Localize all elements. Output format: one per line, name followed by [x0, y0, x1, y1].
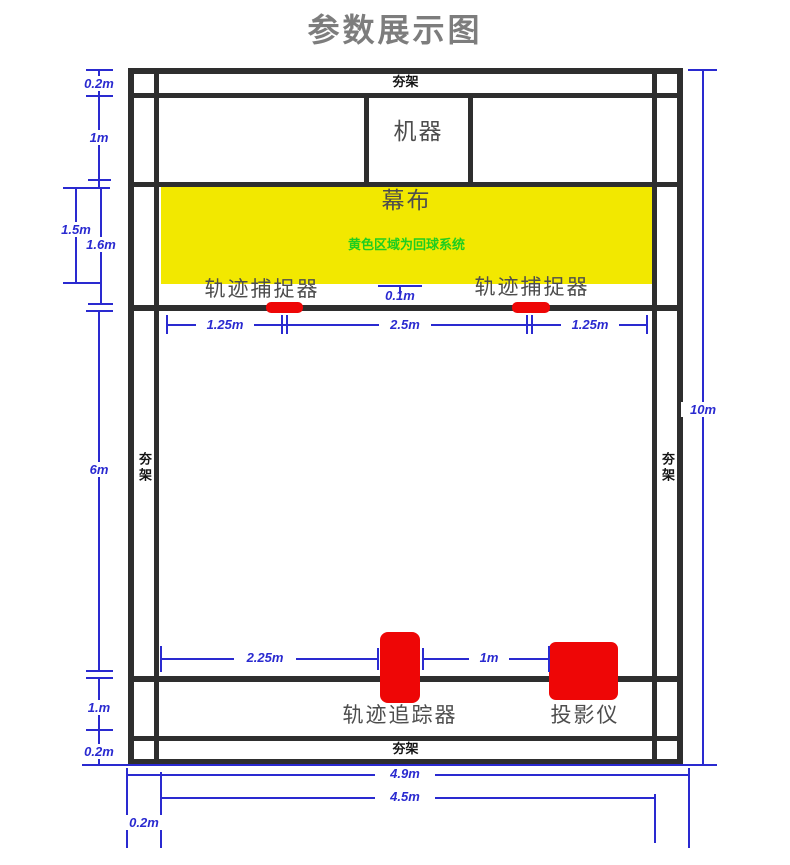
projector-device [549, 642, 618, 700]
dim-tick [548, 646, 550, 672]
dim-net-left: 1.25m [196, 317, 254, 332]
dim-screen-to-net: 1.6m [79, 237, 123, 252]
screen-label: 幕布 [161, 189, 652, 213]
dim-tick [377, 648, 379, 670]
dim-tick [526, 315, 528, 334]
frame-line-machine-bottom [128, 182, 683, 187]
dim-screen-net-gap: 0.1m [378, 288, 422, 303]
dim-tick [86, 69, 113, 71]
dim-net-center: 2.5m [379, 317, 431, 332]
dim-total-height: 10m [681, 402, 725, 417]
tracker-device [380, 632, 420, 703]
dim-tick [126, 768, 128, 848]
machine-label: 机器 [364, 120, 473, 144]
capture-left-label: 轨迹捕捉器 [198, 277, 326, 301]
frame-line-inner-right [652, 68, 657, 765]
dim-inner-width: 4.5m [375, 789, 435, 804]
dim-tick [160, 646, 162, 672]
dim-net-right: 1.25m [561, 317, 619, 332]
tracker-label: 轨迹追踪器 [336, 703, 464, 727]
capture-device-right [512, 302, 550, 313]
frame-line-inner-left [154, 68, 159, 765]
dim-line [702, 70, 704, 765]
dim-tick [646, 315, 648, 334]
dim-tick [86, 95, 113, 97]
dim-top-offset: 0.2m [78, 76, 120, 91]
parameter-diagram: 参数展示图 夯架 夯架 夯架 夯架 机器 幕布 黄色区域为回球系统 轨迹捕捉器 … [0, 0, 790, 865]
dim-width-offset: 0.2m [121, 815, 167, 830]
frame-line-net [128, 305, 683, 311]
dim-tracker-projector-gap: 1m [469, 650, 509, 665]
dim-outer-width: 4.9m [375, 766, 435, 781]
dim-bottom-offset: 0.2m [76, 744, 122, 759]
dim-machine-row-height: 1m [80, 130, 118, 145]
dim-bottom-row-height: 1.m [80, 700, 118, 715]
capture-right-label: 轨迹捕捉器 [468, 275, 596, 299]
dim-line [98, 311, 100, 671]
dim-tick [531, 315, 533, 334]
dim-tick [281, 315, 283, 334]
screen-note: 黄色区域为回球系统 [161, 237, 652, 252]
projector-label: 投影仪 [545, 703, 625, 727]
frame-line-outer-left [128, 68, 134, 765]
dim-tick [63, 282, 101, 284]
truss-label-left: 夯架 [136, 452, 152, 484]
dim-tick [88, 179, 111, 181]
dim-screen-height: 1.5m [54, 222, 98, 237]
truss-label-bottom: 夯架 [128, 741, 683, 756]
frame-line-inner-top [128, 93, 683, 98]
dim-tick [166, 315, 168, 334]
truss-label-right: 夯架 [659, 452, 675, 484]
dim-tick [688, 768, 690, 848]
dim-tick [86, 670, 113, 672]
dim-court-height: 6m [80, 462, 118, 477]
dim-tick [160, 772, 162, 848]
capture-device-left [266, 302, 303, 313]
dim-tick [286, 315, 288, 334]
page-title: 参数展示图 [0, 5, 790, 51]
truss-label-top: 夯架 [128, 74, 683, 89]
dim-tracker-offset: 2.25m [234, 650, 296, 665]
dim-tick [63, 187, 110, 189]
dim-tick [422, 648, 424, 670]
dim-tick [654, 794, 656, 843]
dim-tick [88, 303, 113, 305]
